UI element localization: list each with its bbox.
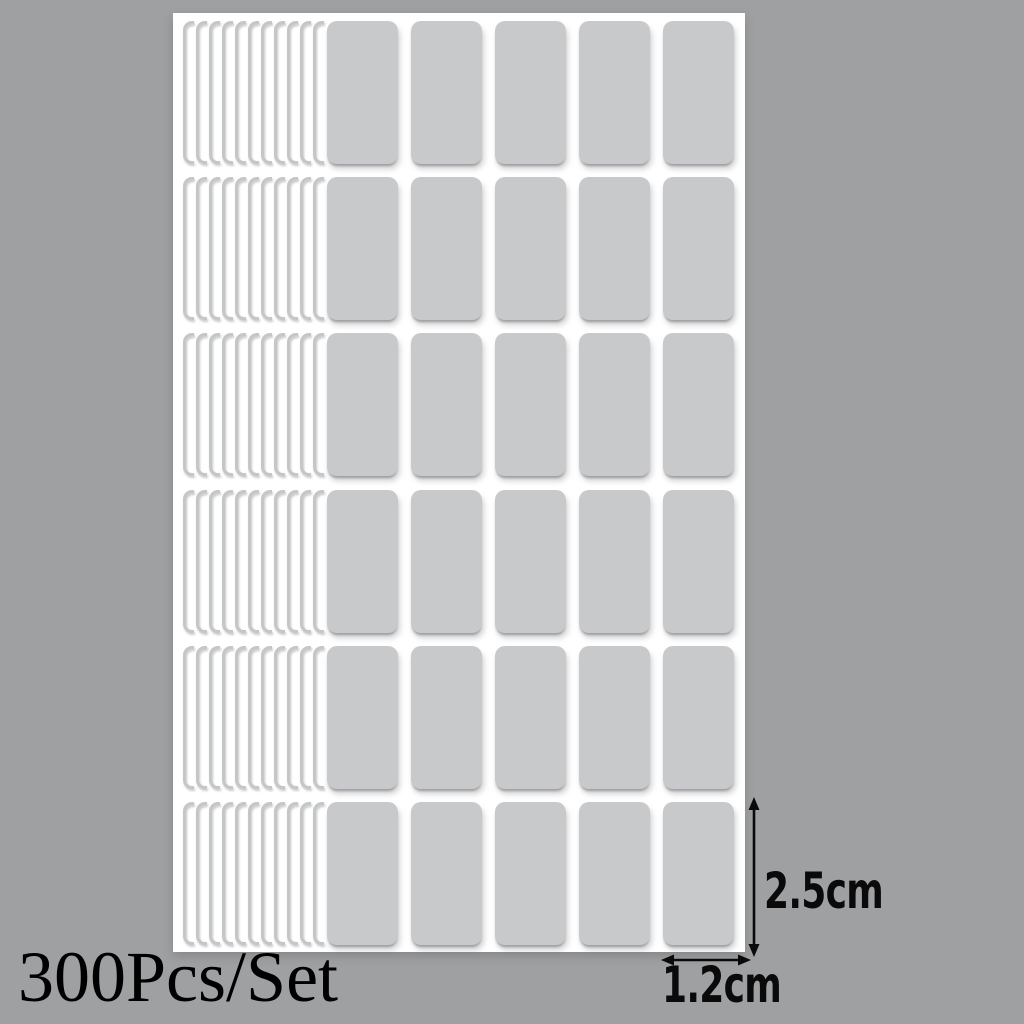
back-sheet-edge	[235, 21, 246, 164]
back-sheet-edge	[287, 177, 298, 320]
back-sheet-edge	[300, 646, 311, 789]
back-sheet-edge	[196, 802, 207, 945]
sticker-columns	[327, 802, 734, 945]
fanned-back-sheets	[183, 21, 324, 164]
back-sheet-edge	[274, 802, 285, 945]
back-sheet-edge	[248, 646, 259, 789]
back-sheet-edge	[261, 802, 272, 945]
sticker-columns	[327, 333, 734, 476]
back-sheet-edge	[274, 333, 285, 476]
set-count-label: 300Pcs/Set	[18, 941, 338, 1013]
back-sheet-edge	[235, 333, 246, 476]
back-sheet-edge	[300, 21, 311, 164]
back-sheet-edge	[235, 646, 246, 789]
blank-sticker	[411, 490, 482, 633]
back-sheet-edge	[183, 21, 194, 164]
back-sheet-edge	[222, 333, 233, 476]
back-sheet-edge	[313, 177, 324, 320]
back-sheet-edge	[313, 21, 324, 164]
blank-sticker	[411, 333, 482, 476]
back-sheet-edge	[235, 490, 246, 633]
sticker-row	[183, 802, 734, 945]
blank-sticker	[579, 177, 650, 320]
back-sheet-edge	[261, 490, 272, 633]
back-sheet-edge	[209, 177, 220, 320]
back-sheet-edge	[222, 646, 233, 789]
back-sheet-edge	[235, 802, 246, 945]
back-sheet-edge	[287, 802, 298, 945]
back-sheet-edge	[248, 490, 259, 633]
blank-sticker	[663, 21, 734, 164]
sticker-columns	[327, 490, 734, 633]
back-sheet-edge	[274, 21, 285, 164]
back-sheet-edge	[287, 646, 298, 789]
back-sheet-edge	[196, 21, 207, 164]
back-sheet-edge	[261, 21, 272, 164]
back-sheet-edge	[261, 646, 272, 789]
back-sheet-edge	[209, 802, 220, 945]
back-sheet-edge	[222, 177, 233, 320]
blank-sticker	[327, 490, 398, 633]
back-sheet-edge	[248, 802, 259, 945]
sticker-row	[183, 490, 734, 633]
blank-sticker	[495, 646, 566, 789]
blank-sticker	[411, 802, 482, 945]
back-sheet-edge	[183, 333, 194, 476]
blank-sticker	[495, 802, 566, 945]
sticker-row	[183, 646, 734, 789]
back-sheet-edge	[313, 802, 324, 945]
product-image: 2.5cm 1.2cm 300Pcs/Set	[0, 0, 1024, 1024]
back-sheet-edge	[222, 490, 233, 633]
sticker-row	[183, 21, 734, 164]
blank-sticker	[579, 802, 650, 945]
fanned-back-sheets	[183, 333, 324, 476]
height-dimension-arrow	[745, 796, 763, 958]
back-sheet-edge	[274, 177, 285, 320]
blank-sticker	[495, 490, 566, 633]
blank-sticker	[579, 646, 650, 789]
back-sheet-edge	[313, 646, 324, 789]
back-sheet-edge	[313, 490, 324, 633]
back-sheet-edge	[209, 333, 220, 476]
back-sheet-edge	[300, 490, 311, 633]
fanned-back-sheets	[183, 802, 324, 945]
blank-sticker	[327, 21, 398, 164]
back-sheet-edge	[196, 333, 207, 476]
sticker-row	[183, 177, 734, 320]
height-dimension-label: 2.5cm	[764, 866, 883, 916]
blank-sticker	[411, 177, 482, 320]
back-sheet-edge	[287, 490, 298, 633]
blank-sticker	[663, 177, 734, 320]
back-sheet-edge	[300, 333, 311, 476]
blank-sticker	[495, 177, 566, 320]
blank-sticker	[495, 21, 566, 164]
back-sheet-edge	[248, 21, 259, 164]
back-sheet-edge	[287, 333, 298, 476]
back-sheet-edge	[261, 333, 272, 476]
blank-sticker	[663, 646, 734, 789]
blank-sticker	[579, 490, 650, 633]
back-sheet-edge	[209, 646, 220, 789]
blank-sticker	[663, 490, 734, 633]
fanned-back-sheets	[183, 490, 324, 633]
sticker-row	[183, 333, 734, 476]
blank-sticker	[327, 177, 398, 320]
back-sheet-edge	[261, 177, 272, 320]
blank-sticker	[663, 333, 734, 476]
back-sheet-edge	[183, 177, 194, 320]
back-sheet-edge	[300, 802, 311, 945]
back-sheet-edge	[248, 177, 259, 320]
fanned-back-sheets	[183, 177, 324, 320]
back-sheet-edge	[235, 177, 246, 320]
blank-sticker	[411, 21, 482, 164]
back-sheet-edge	[196, 646, 207, 789]
sticker-columns	[327, 177, 734, 320]
blank-sticker	[327, 646, 398, 789]
width-dimension-label: 1.2cm	[662, 960, 781, 1010]
sticker-sheet	[173, 13, 745, 952]
back-sheet-edge	[274, 490, 285, 633]
back-sheet-edge	[183, 490, 194, 633]
back-sheet-edge	[222, 21, 233, 164]
blank-sticker	[327, 802, 398, 945]
fanned-back-sheets	[183, 646, 324, 789]
back-sheet-edge	[248, 333, 259, 476]
blank-sticker	[327, 333, 398, 476]
back-sheet-edge	[196, 177, 207, 320]
back-sheet-edge	[300, 177, 311, 320]
blank-sticker	[495, 333, 566, 476]
back-sheet-edge	[209, 490, 220, 633]
blank-sticker	[579, 333, 650, 476]
back-sheet-edge	[183, 802, 194, 945]
sticker-columns	[327, 21, 734, 164]
blank-sticker	[579, 21, 650, 164]
blank-sticker	[663, 802, 734, 945]
back-sheet-edge	[287, 21, 298, 164]
sticker-columns	[327, 646, 734, 789]
back-sheet-edge	[222, 802, 233, 945]
back-sheet-edge	[196, 490, 207, 633]
back-sheet-edge	[209, 21, 220, 164]
back-sheet-edge	[313, 333, 324, 476]
back-sheet-edge	[274, 646, 285, 789]
back-sheet-edge	[183, 646, 194, 789]
blank-sticker	[411, 646, 482, 789]
